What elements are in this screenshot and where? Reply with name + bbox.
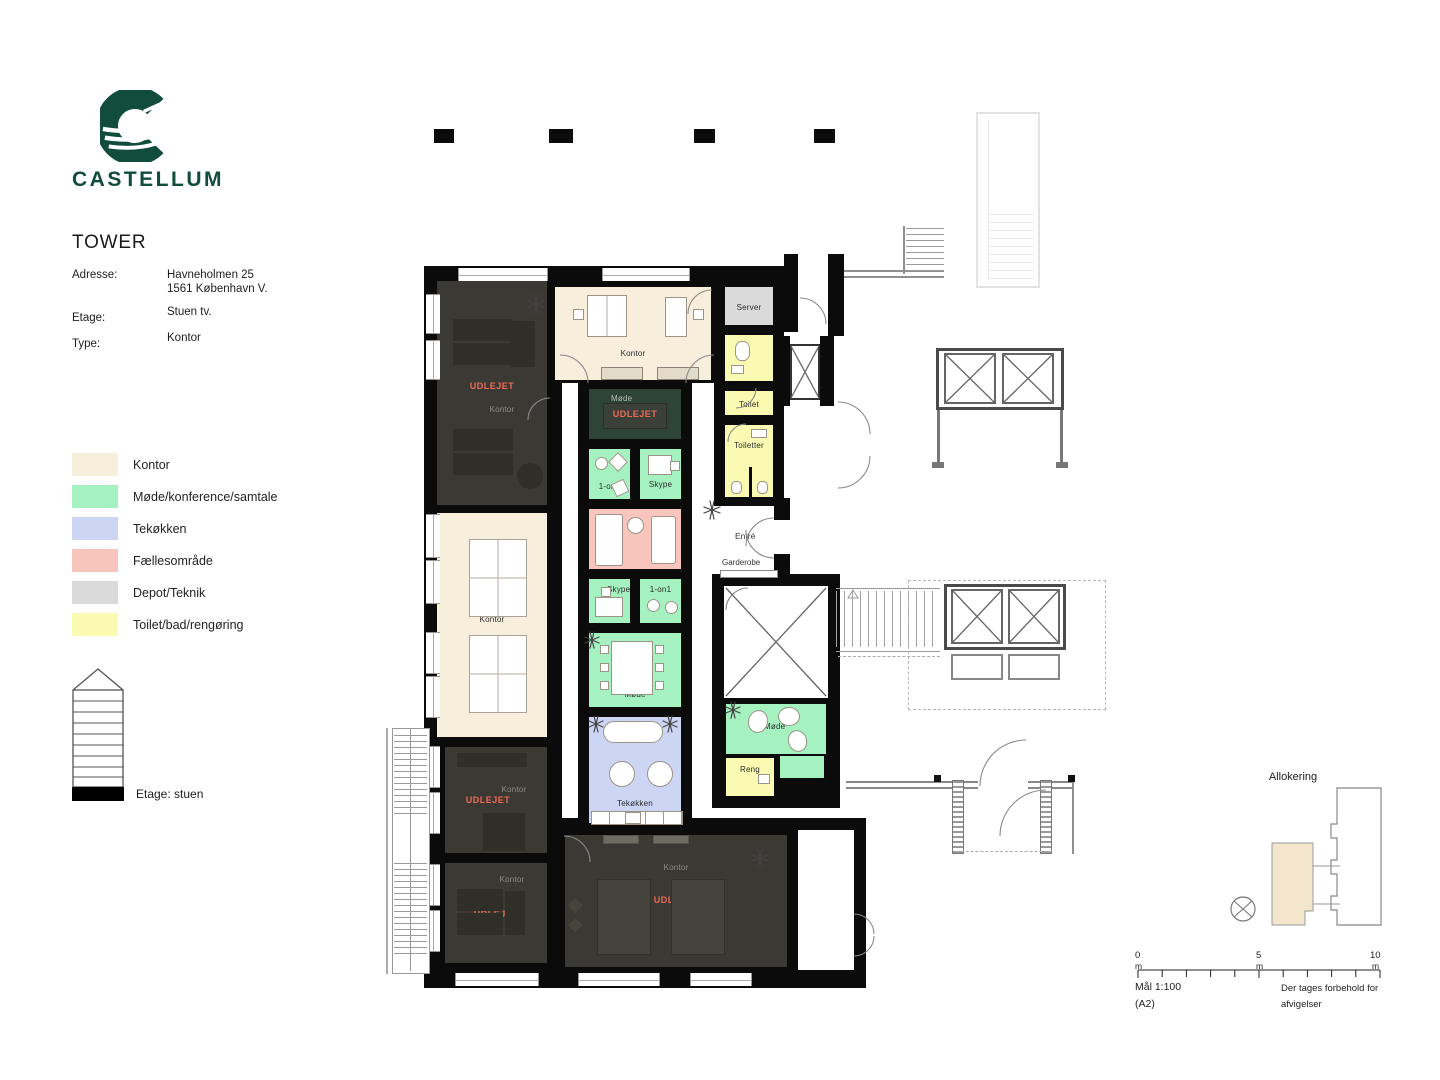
room-label: Reng [740, 765, 760, 774]
elevator-car-icon [1008, 589, 1060, 644]
elevator-car-icon [951, 589, 1003, 644]
room-kontor-udlejet: Kontor UDLEJET [442, 744, 550, 856]
disclaimer-line1: Der tages forbehold for [1281, 983, 1378, 994]
sheet-size: (A2) [1135, 998, 1155, 1010]
floor-value: Stuen tv. [167, 305, 212, 325]
address-row: Adresse: Havneholmen 25 1561 København V… [72, 268, 268, 296]
room-unlabeled [798, 830, 854, 970]
legend-swatch-toilet [72, 613, 118, 636]
wardrobe [720, 570, 778, 578]
room-reng: Reng [724, 756, 776, 798]
legend-item-kontor: Kontor [72, 453, 170, 476]
scale-note: Mål 1:100 [1135, 981, 1181, 993]
legend-label: Kontor [133, 458, 170, 472]
room-toilet-fixtures [722, 332, 776, 384]
room-toilet: Toilet [722, 388, 776, 418]
area-label-garderobe: Garderobe [722, 558, 760, 567]
room-mode: Møde [724, 702, 828, 756]
wall [828, 254, 844, 336]
legend-item-toilet: Toilet/bad/rengøring [72, 613, 243, 636]
legend-label: Møde/konference/samtale [133, 490, 278, 504]
legend-swatch-faelles [72, 549, 118, 572]
column-marker [694, 129, 715, 143]
page-title: TOWER [72, 232, 146, 254]
room-kontor-udlejet: Kontor UDLEJET [442, 860, 550, 966]
scale-tick-0: 0 [1135, 950, 1140, 961]
compass-icon [1231, 897, 1255, 921]
room-label: Tekøkken [617, 799, 653, 808]
room-label: Kontor [490, 405, 515, 414]
status-badge: UDLEJET [466, 795, 511, 805]
room-label: Skype [649, 480, 672, 489]
status-badge: UDLEJET [470, 381, 515, 391]
legend-item-depot: Depot/Teknik [72, 581, 205, 604]
floor-label: Etage: [72, 305, 167, 325]
room-skype: Skype [586, 576, 633, 626]
room-label: Server [737, 303, 762, 312]
column-marker [434, 129, 454, 143]
room-mode-ext [778, 754, 826, 780]
wall [784, 254, 798, 332]
address-label: Adresse: [72, 268, 167, 296]
room-label: Kontor [500, 875, 525, 884]
external-staircase [392, 728, 430, 974]
type-label: Type: [72, 331, 167, 351]
address-line1: Havneholmen 25 [167, 268, 268, 282]
room-label: Toilet [739, 400, 759, 409]
legend-label: Fællesområde [133, 554, 213, 568]
building-elevation-icon [72, 664, 124, 804]
room-label: Kontor [664, 863, 689, 872]
legend-item-tekokken: Tekøkken [72, 517, 187, 540]
area-faellesomraade [586, 506, 684, 572]
room-server: Server [722, 284, 776, 328]
floorplan-sheet: CASTELLUM TOWER Adresse: Havneholmen 25 … [0, 0, 1440, 1080]
room-kontor-udlejet: UDLEJET Kontor [434, 278, 550, 508]
scale-tick-5: 5 [1256, 950, 1261, 961]
elevator-car-icon [944, 353, 996, 404]
room-1on1: 1-on1 [637, 576, 684, 626]
scale-unit: m [1256, 961, 1263, 971]
room-kontor-udlejet: Kontor UDLEJET [562, 832, 790, 970]
room-skype: Skype [637, 446, 684, 502]
allocation-site-plan [1231, 788, 1381, 925]
legend-label: Toilet/bad/rengøring [133, 618, 243, 632]
area-label-entre: Entré [735, 531, 755, 541]
castellum-logo-icon [100, 90, 170, 162]
shaft-void [724, 586, 828, 698]
balcony-post [952, 780, 964, 854]
room-label: Kontor [621, 349, 646, 358]
room-label: Toiletter [734, 441, 764, 450]
scale-bar [1138, 970, 1380, 978]
legend-label: Depot/Teknik [133, 586, 205, 600]
floor-indicator-label: Etage: stuen [136, 787, 203, 801]
room-label: Kontor [502, 785, 527, 794]
scale-unit: m [1135, 961, 1142, 971]
wall [820, 336, 834, 406]
room-kontor: Kontor [552, 284, 714, 383]
brand-name: CASTELLUM [72, 168, 224, 192]
legend-item-mode: Møde/konference/samtale [72, 485, 278, 508]
room-toiletter: Toiletter [722, 422, 776, 500]
elevator-car-icon [1002, 353, 1054, 404]
legend-label: Tekøkken [133, 522, 187, 536]
legend-swatch-kontor [72, 453, 118, 476]
status-badge: UDLEJET [613, 409, 658, 419]
legend-swatch-mode [72, 485, 118, 508]
elevator-car-icon [790, 344, 820, 400]
type-value: Kontor [167, 331, 201, 351]
column-marker [814, 129, 835, 143]
address-line2: 1561 København V. [167, 282, 268, 296]
column-marker [549, 129, 573, 143]
legend-swatch-depot [72, 581, 118, 604]
balcony-post [1040, 780, 1052, 854]
floor-row: Etage: Stuen tv. [72, 305, 212, 325]
room-label: 1-on1 [650, 585, 671, 594]
room-label: Møde [611, 394, 632, 403]
wall [774, 498, 790, 520]
scale-tick-10: 10 [1370, 950, 1381, 961]
legend-swatch-tekokken [72, 517, 118, 540]
type-row: Type: Kontor [72, 331, 201, 351]
room-mode: Møde [586, 630, 684, 710]
room-tekokken: Tekøkken [586, 714, 684, 826]
legend-item-faelles: Fællesområde [72, 549, 213, 572]
scale-unit: m [1372, 961, 1379, 971]
room-1on1: 1-on1 [586, 446, 633, 502]
disclaimer-line2: afvigelser [1281, 999, 1322, 1010]
room-kontor: Kontor [434, 510, 550, 740]
room-mode-udlejet: Møde UDLEJET [586, 386, 684, 442]
allocation-title: Allokering [1248, 771, 1338, 783]
wall [780, 336, 790, 406]
